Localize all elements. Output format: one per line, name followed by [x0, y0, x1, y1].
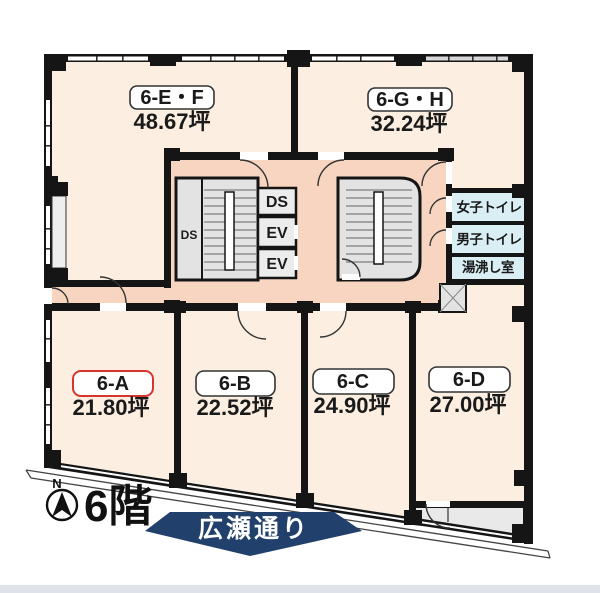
wall-wet-divider1: [452, 221, 533, 225]
unit-a-id: 6-A: [97, 373, 129, 395]
wall-c-d-divider: [409, 308, 416, 519]
unit-b-area: 22.52坪: [196, 395, 273, 420]
footer-strip: [0, 585, 600, 593]
stair-rail: [225, 192, 234, 270]
duct-top-label: DS: [266, 194, 289, 211]
unit-c-area: 24.90坪: [313, 393, 390, 418]
wall-ef-gh-divider: [291, 60, 298, 158]
left-pilaster: [52, 182, 68, 282]
floorplan-canvas: DS DS EV EV: [0, 0, 600, 593]
floorplan-page: DS DS EV EV: [0, 0, 600, 593]
unit-d-area: 27.00坪: [429, 392, 506, 417]
unit-ef-area: 48.67坪: [133, 109, 210, 134]
north-label: N: [52, 476, 61, 491]
staircase-left: DS: [176, 178, 258, 280]
duct-side-label: DS: [181, 228, 198, 242]
wall-core-top: [164, 152, 452, 160]
unit-b-id: 6-B: [219, 373, 251, 395]
kitchenette-label: 湯沸し室: [462, 259, 515, 275]
small-shaft: [440, 284, 466, 312]
floor-title: 6階: [84, 482, 152, 531]
unit-gh-id: 6-G・H: [376, 89, 444, 111]
unit-c-id: 6-C: [337, 371, 369, 393]
unit-gh-area: 32.24坪: [370, 111, 447, 136]
unit-d-id: 6-D: [453, 369, 485, 391]
wall-b-c-divider: [301, 308, 308, 502]
wall-wet-divider2: [452, 253, 533, 257]
elevator-2-label: EV: [266, 256, 288, 273]
unit-a-area: 21.80坪: [72, 395, 149, 420]
elevator-shafts: DS EV EV: [258, 188, 298, 278]
street-name-label: 広瀬通り: [198, 514, 310, 543]
womens-toilet-label: 女子トイレ: [457, 199, 522, 215]
wall-core-left: [164, 152, 171, 288]
staircase-right: [338, 178, 420, 280]
mens-toilet-label: 男子トイレ: [457, 232, 522, 247]
elevator-1-label: EV: [266, 225, 288, 242]
stair-rail: [374, 192, 383, 264]
wall-a-b-divider: [174, 308, 181, 482]
unit-ef-id: 6-E・F: [140, 87, 203, 109]
facility-labels: 女子トイレ 男子トイレ 湯沸し室: [457, 199, 522, 275]
